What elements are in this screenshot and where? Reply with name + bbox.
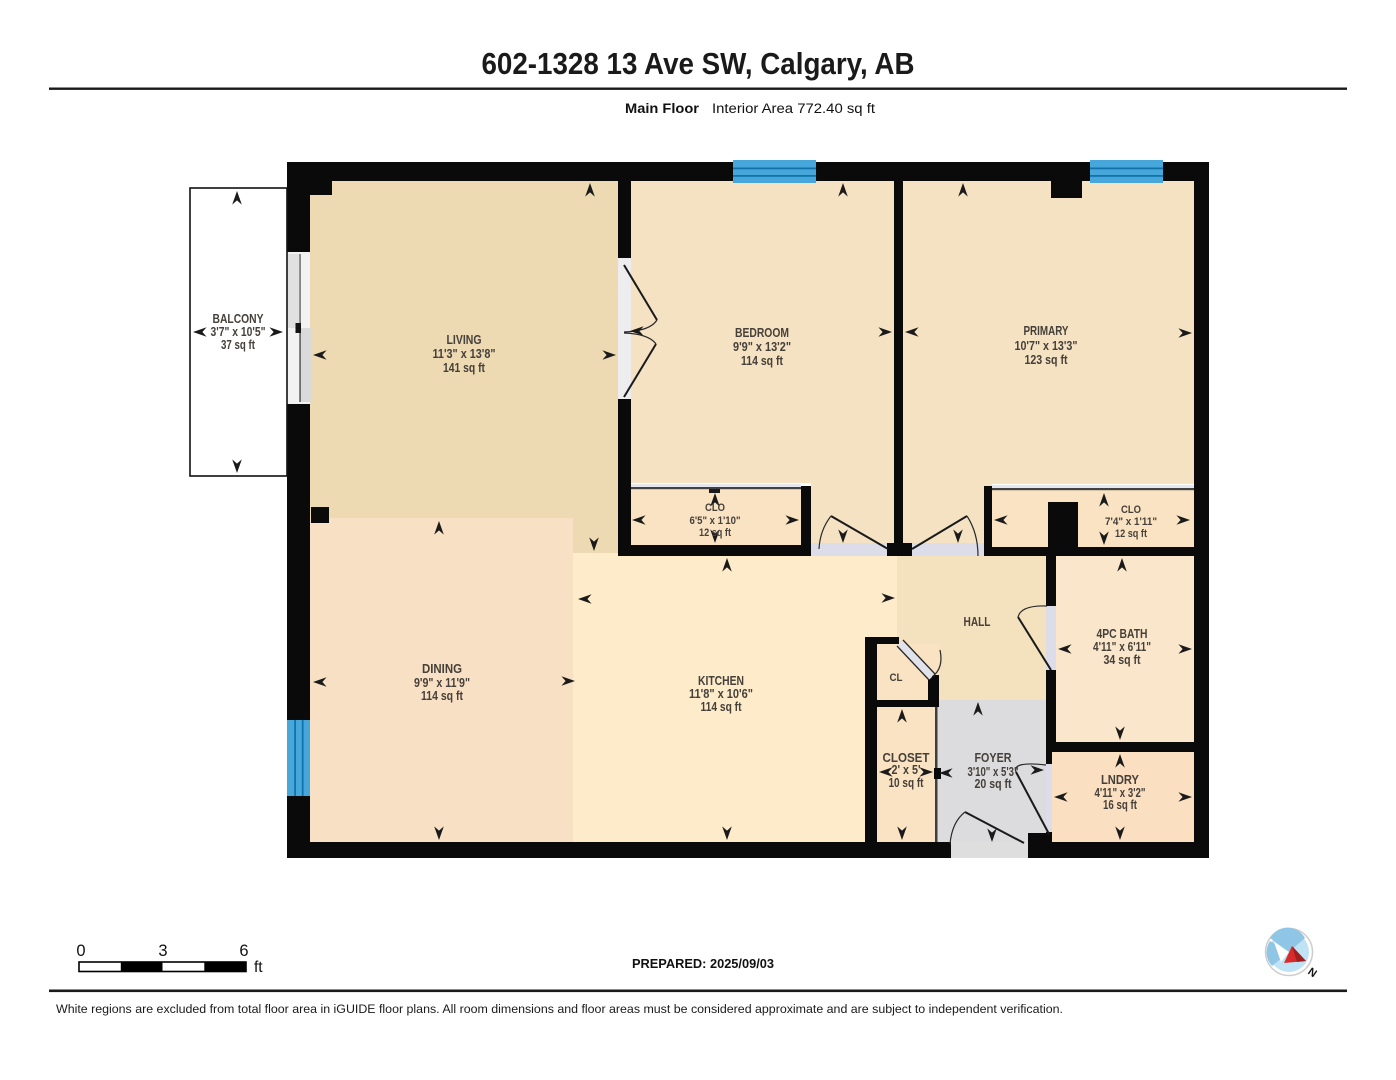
svg-text:10'7" x 13'3": 10'7" x 13'3" xyxy=(1015,339,1078,353)
svg-text:11'3" x 13'8": 11'3" x 13'8" xyxy=(433,347,496,361)
svg-text:37 sq ft: 37 sq ft xyxy=(221,338,256,352)
svg-text:114 sq ft: 114 sq ft xyxy=(741,354,784,368)
svg-text:BEDROOM: BEDROOM xyxy=(735,326,789,340)
svg-text:6'5" x 1'10": 6'5" x 1'10" xyxy=(690,515,741,527)
svg-text:LIVING: LIVING xyxy=(447,333,482,347)
svg-text:DINING: DINING xyxy=(422,662,462,676)
svg-text:PRIMARY: PRIMARY xyxy=(1024,324,1070,338)
svg-text:34 sq ft: 34 sq ft xyxy=(1104,653,1142,667)
svg-text:6: 6 xyxy=(239,942,248,960)
svg-text:Interior Area 772.40 sq ft: Interior Area 772.40 sq ft xyxy=(712,101,875,116)
svg-text:11'8" x 10'6": 11'8" x 10'6" xyxy=(689,687,753,701)
svg-text:4'11" x 6'11": 4'11" x 6'11" xyxy=(1093,640,1151,654)
svg-text:Main Floor: Main Floor xyxy=(625,101,700,116)
svg-text:ft: ft xyxy=(254,959,263,976)
svg-text:12 sq ft: 12 sq ft xyxy=(1115,528,1147,540)
svg-text:N: N xyxy=(1305,966,1318,980)
svg-text:0: 0 xyxy=(76,942,85,960)
svg-text:LNDRY: LNDRY xyxy=(1101,773,1140,787)
svg-text:3'7" x 10'5": 3'7" x 10'5" xyxy=(211,325,266,339)
svg-text:HALL: HALL xyxy=(964,615,991,629)
svg-text:7'4" x 1'11": 7'4" x 1'11" xyxy=(1105,516,1157,528)
svg-text:CLO: CLO xyxy=(1121,504,1141,516)
svg-text:KITCHEN: KITCHEN xyxy=(698,674,744,688)
svg-text:PREPARED: 2025/09/03: PREPARED: 2025/09/03 xyxy=(632,956,774,971)
svg-text:3: 3 xyxy=(158,942,167,960)
svg-text:9'9" x 11'9": 9'9" x 11'9" xyxy=(414,676,470,690)
svg-text:9'9" x 13'2": 9'9" x 13'2" xyxy=(733,340,791,354)
svg-text:FOYER: FOYER xyxy=(975,751,1012,765)
svg-text:123 sq ft: 123 sq ft xyxy=(1025,353,1069,367)
svg-text:114 sq ft: 114 sq ft xyxy=(421,689,464,703)
svg-text:CL: CL xyxy=(890,672,903,684)
svg-text:20 sq ft: 20 sq ft xyxy=(975,777,1013,791)
svg-text:CLO: CLO xyxy=(705,502,725,514)
svg-text:White regions are excluded fro: White regions are excluded from total fl… xyxy=(56,1002,1063,1016)
svg-text:4PC BATH: 4PC BATH xyxy=(1097,627,1148,641)
svg-text:10 sq ft: 10 sq ft xyxy=(889,776,925,790)
svg-text:12 sq ft: 12 sq ft xyxy=(699,527,731,539)
svg-text:BALCONY: BALCONY xyxy=(213,312,265,326)
svg-text:141 sq ft: 141 sq ft xyxy=(443,361,486,375)
svg-text:2' x 5': 2' x 5' xyxy=(892,763,921,777)
svg-text:16 sq ft: 16 sq ft xyxy=(1103,798,1138,812)
svg-text:114 sq ft: 114 sq ft xyxy=(701,700,743,714)
svg-text:602-1328 13 Ave SW, Calgary, A: 602-1328 13 Ave SW, Calgary, AB xyxy=(482,46,915,81)
